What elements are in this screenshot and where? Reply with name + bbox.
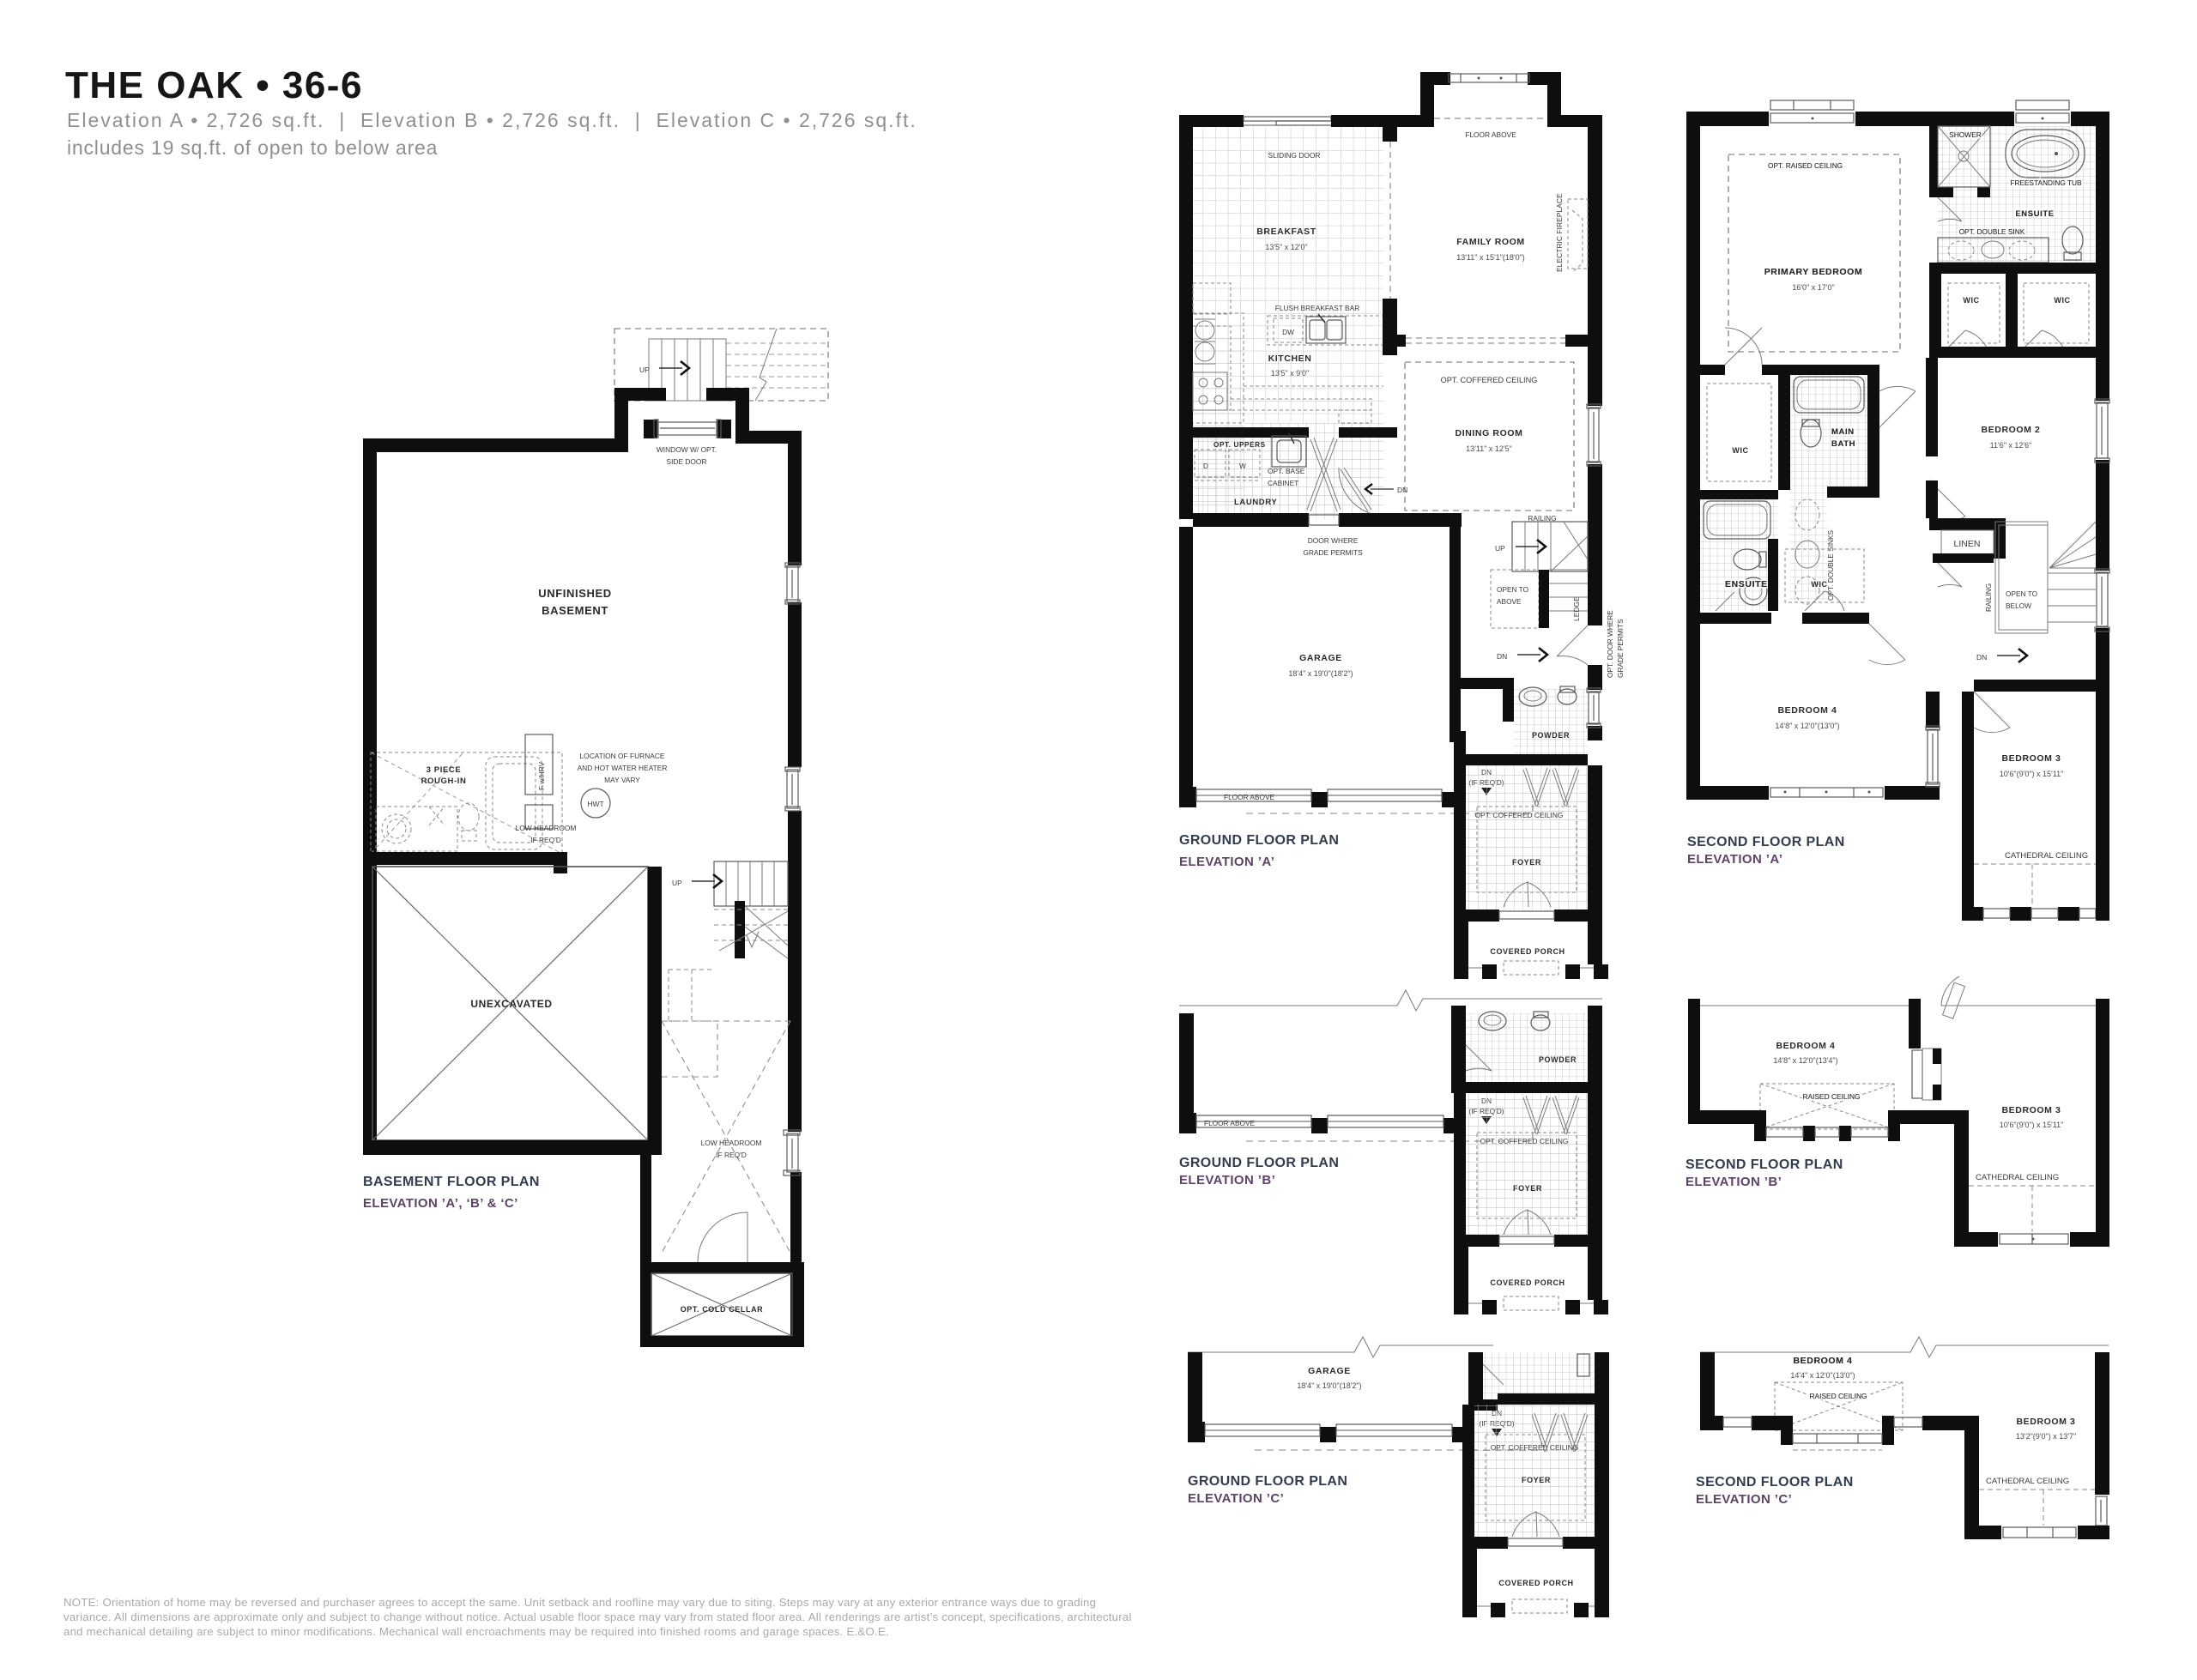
svg-text:OPEN TO: OPEN TO bbox=[2006, 589, 2038, 598]
svg-text:DINING ROOM: DINING ROOM bbox=[1456, 428, 1523, 438]
svg-text:FLUSH BREAKFAST BAR: FLUSH BREAKFAST BAR bbox=[1275, 304, 1360, 312]
svg-text:GROUND FLOOR PLAN: GROUND FLOOR PLAN bbox=[1179, 1156, 1339, 1170]
svg-text:MAY VARY: MAY VARY bbox=[604, 776, 640, 784]
svg-text:Elevation A • 2,726 sq.ft. |: Elevation A • 2,726 sq.ft. | Elevation B… bbox=[67, 109, 917, 131]
svg-text:POWDER: POWDER bbox=[1532, 731, 1570, 740]
svg-text:CATHEDRAL CEILING: CATHEDRAL CEILING bbox=[1986, 1477, 2069, 1486]
svg-text:WIC: WIC bbox=[1811, 580, 1827, 589]
svg-text:OPT. DOUBLE SINKS: OPT. DOUBLE SINKS bbox=[1826, 529, 1835, 601]
svg-text:OPT. COFFERED CEILING: OPT. COFFERED CEILING bbox=[1480, 1137, 1569, 1145]
svg-text:KITCHEN: KITCHEN bbox=[1268, 354, 1312, 364]
svg-text:GRADE PERMITS: GRADE PERMITS bbox=[1303, 548, 1363, 557]
svg-text:ENSUITE: ENSUITE bbox=[2015, 209, 2054, 219]
svg-text:ELECTRIC FIREPLACE: ELECTRIC FIREPLACE bbox=[1555, 193, 1564, 272]
svg-text:OPT. COFFERED CEILING: OPT. COFFERED CEILING bbox=[1475, 811, 1564, 819]
svg-text:CATHEDRAL CEILING: CATHEDRAL CEILING bbox=[1976, 1173, 2059, 1182]
svg-text:BELOW: BELOW bbox=[2006, 601, 2031, 610]
svg-text:D: D bbox=[1203, 462, 1208, 470]
svg-text:18'4" x 19'0"(18'2"): 18'4" x 19'0"(18'2") bbox=[1288, 669, 1353, 678]
svg-text:BREAKFAST: BREAKFAST bbox=[1256, 227, 1316, 237]
svg-text:AND HOT WATER HEATER: AND HOT WATER HEATER bbox=[578, 764, 668, 772]
svg-text:FLOOR ABOVE: FLOOR ABOVE bbox=[1465, 130, 1516, 139]
svg-text:10'6"(9'0") x 15'11": 10'6"(9'0") x 15'11" bbox=[2000, 1121, 2064, 1129]
svg-text:and mechanical detailing are s: and mechanical detailing are subject to … bbox=[64, 1625, 889, 1638]
svg-text:ELEVATION ’C’: ELEVATION ’C’ bbox=[1696, 1492, 1792, 1507]
svg-text:MAIN: MAIN bbox=[1831, 427, 1855, 437]
svg-text:SECOND FLOOR PLAN: SECOND FLOOR PLAN bbox=[1687, 835, 1845, 849]
svg-text:13'11" x 15'1"(18'0"): 13'11" x 15'1"(18'0") bbox=[1456, 253, 1525, 262]
svg-text:CABINET: CABINET bbox=[1268, 479, 1298, 487]
svg-text:includes 19 sq.ft. of open to: includes 19 sq.ft. of open to below area bbox=[67, 136, 438, 159]
svg-text:RAISED CEILING: RAISED CEILING bbox=[1802, 1092, 1860, 1101]
svg-text:W: W bbox=[1239, 462, 1246, 470]
svg-text:GARAGE: GARAGE bbox=[1308, 1366, 1351, 1376]
svg-text:ELEVATION ’A’: ELEVATION ’A’ bbox=[1179, 855, 1274, 869]
svg-text:GROUND FLOOR PLAN: GROUND FLOOR PLAN bbox=[1179, 833, 1339, 848]
svg-text:BEDROOM 2: BEDROOM 2 bbox=[1982, 425, 2041, 435]
svg-text:BEDROOM 4: BEDROOM 4 bbox=[1794, 1356, 1853, 1366]
svg-text:UNEXCAVATED: UNEXCAVATED bbox=[470, 998, 552, 1010]
svg-text:BEDROOM 3: BEDROOM 3 bbox=[2002, 1105, 2061, 1115]
svg-text:10'6"(9'0") x 15'11": 10'6"(9'0") x 15'11" bbox=[2000, 770, 2064, 778]
svg-text:ELEVATION ’A’, ‘B’ & ‘C’: ELEVATION ’A’, ‘B’ & ‘C’ bbox=[363, 1196, 518, 1211]
svg-text:14'8" x 12'0"(13'4"): 14'8" x 12'0"(13'4") bbox=[1773, 1056, 1837, 1065]
svg-text:UP: UP bbox=[672, 879, 682, 887]
svg-text:UP: UP bbox=[639, 366, 650, 374]
svg-text:RAILING: RAILING bbox=[1984, 583, 1993, 612]
svg-text:F w/HRV: F w/HRV bbox=[537, 761, 546, 790]
svg-text:GARAGE: GARAGE bbox=[1299, 653, 1342, 663]
svg-text:ELEVATION ’A’: ELEVATION ’A’ bbox=[1687, 852, 1782, 867]
svg-text:13'5" x 9'0": 13'5" x 9'0" bbox=[1271, 369, 1309, 378]
svg-text:IF REQ'D: IF REQ'D bbox=[716, 1151, 747, 1159]
svg-text:UNFINISHED: UNFINISHED bbox=[538, 587, 611, 600]
svg-text:11'6" x 12'6": 11'6" x 12'6" bbox=[1990, 441, 2032, 450]
svg-text:FOYER: FOYER bbox=[1522, 1476, 1551, 1484]
svg-text:FAMILY ROOM: FAMILY ROOM bbox=[1456, 237, 1525, 247]
svg-text:BATH: BATH bbox=[1831, 439, 1855, 449]
svg-text:DN: DN bbox=[1397, 486, 1407, 494]
svg-text:FOYER: FOYER bbox=[1512, 858, 1541, 867]
svg-text:OPT. RAISED CEILING: OPT. RAISED CEILING bbox=[1768, 161, 1843, 170]
svg-text:WIC: WIC bbox=[1963, 296, 1979, 305]
svg-text:BEDROOM 3: BEDROOM 3 bbox=[2002, 753, 2061, 764]
svg-text:OPT. DOUBLE SINK: OPT. DOUBLE SINK bbox=[1959, 227, 2025, 236]
svg-text:ROUGH-IN: ROUGH-IN bbox=[421, 777, 467, 786]
svg-text:IF REQ'D: IF REQ'D bbox=[530, 836, 561, 844]
svg-text:BEDROOM 4: BEDROOM 4 bbox=[1776, 1041, 1836, 1051]
svg-text:DOOR WHERE: DOOR WHERE bbox=[1308, 536, 1359, 545]
svg-text:WIC: WIC bbox=[2054, 296, 2070, 305]
svg-text:BASEMENT FLOOR PLAN: BASEMENT FLOOR PLAN bbox=[363, 1175, 540, 1189]
svg-text:OPT. COFFERED CEILING: OPT. COFFERED CEILING bbox=[1441, 376, 1538, 384]
svg-text:OPT. COFFERED CEILING: OPT. COFFERED CEILING bbox=[1491, 1443, 1579, 1452]
svg-text:NOTE: Orientation of home may: NOTE: Orientation of home may be reverse… bbox=[64, 1596, 1096, 1609]
svg-text:BEDROOM 3: BEDROOM 3 bbox=[2017, 1417, 2076, 1427]
svg-text:LAUNDRY: LAUNDRY bbox=[1234, 498, 1277, 507]
svg-text:ENSUITE: ENSUITE bbox=[1725, 579, 1768, 589]
svg-text:DN: DN bbox=[1497, 652, 1507, 661]
svg-text:13'5" x 12'0": 13'5" x 12'0" bbox=[1265, 243, 1307, 251]
svg-text:THE OAK • 36-6: THE OAK • 36-6 bbox=[65, 64, 363, 106]
svg-text:LOCATION OF FURNACE: LOCATION OF FURNACE bbox=[580, 752, 665, 760]
svg-text:14'4" x 12'0"(13'0"): 14'4" x 12'0"(13'0") bbox=[1790, 1371, 1855, 1380]
svg-text:ELEVATION ’B’: ELEVATION ’B’ bbox=[1686, 1175, 1782, 1189]
svg-text:PRIMARY BEDROOM: PRIMARY BEDROOM bbox=[1764, 267, 1863, 277]
svg-text:13'11" x 12'5": 13'11" x 12'5" bbox=[1466, 444, 1512, 453]
svg-text:DW: DW bbox=[1282, 328, 1294, 336]
svg-text:WIC: WIC bbox=[1732, 446, 1748, 455]
svg-text:CATHEDRAL CEILING: CATHEDRAL CEILING bbox=[2005, 851, 2088, 861]
svg-text:SLIDING DOOR: SLIDING DOOR bbox=[1268, 151, 1321, 160]
svg-text:SIDE DOOR: SIDE DOOR bbox=[667, 457, 707, 466]
svg-text:LINEN: LINEN bbox=[1954, 539, 1981, 549]
svg-text:DN: DN bbox=[1976, 653, 1987, 662]
svg-text:LOW HEADROOM: LOW HEADROOM bbox=[701, 1139, 762, 1147]
svg-text:SECOND FLOOR PLAN: SECOND FLOOR PLAN bbox=[1686, 1157, 1843, 1172]
svg-text:COVERED PORCH: COVERED PORCH bbox=[1498, 1579, 1573, 1587]
svg-text:BEDROOM 4: BEDROOM 4 bbox=[1778, 705, 1837, 716]
svg-text:WINDOW W/ OPT.: WINDOW W/ OPT. bbox=[657, 445, 717, 454]
svg-text:COVERED PORCH: COVERED PORCH bbox=[1490, 1278, 1565, 1287]
svg-text:ELEVATION ’B’: ELEVATION ’B’ bbox=[1179, 1173, 1275, 1187]
svg-text:BASEMENT: BASEMENT bbox=[542, 604, 608, 617]
svg-text:HWT: HWT bbox=[587, 800, 603, 808]
svg-text:ABOVE: ABOVE bbox=[1497, 597, 1522, 606]
svg-text:SHOWER: SHOWER bbox=[1949, 130, 1982, 139]
svg-text:RAILING: RAILING bbox=[1528, 514, 1556, 523]
svg-text:LEDGE: LEDGE bbox=[1572, 596, 1581, 621]
svg-text:18'4" x 19'0"(18'2"): 18'4" x 19'0"(18'2") bbox=[1297, 1381, 1361, 1390]
svg-text:COVERED PORCH: COVERED PORCH bbox=[1490, 947, 1565, 956]
svg-text:LOW HEADROOM: LOW HEADROOM bbox=[516, 824, 577, 832]
svg-text:OPT. COLD CELLAR: OPT. COLD CELLAR bbox=[681, 1305, 764, 1314]
svg-text:variance. All dimensions are a: variance. All dimensions are approximate… bbox=[64, 1611, 1132, 1623]
svg-text:3 PIECE: 3 PIECE bbox=[427, 765, 462, 775]
svg-text:FLOOR ABOVE: FLOOR ABOVE bbox=[1224, 793, 1274, 801]
svg-text:13'2"(9'0") x 13'7": 13'2"(9'0") x 13'7" bbox=[2016, 1432, 2076, 1441]
svg-text:RAISED CEILING: RAISED CEILING bbox=[1809, 1392, 1867, 1400]
svg-text:OPT. BASE: OPT. BASE bbox=[1268, 467, 1305, 475]
svg-text:FLOOR ABOVE: FLOOR ABOVE bbox=[1204, 1119, 1255, 1127]
svg-text:GROUND FLOOR PLAN: GROUND FLOOR PLAN bbox=[1188, 1474, 1347, 1489]
svg-text:GRADE PERMITS: GRADE PERMITS bbox=[1616, 619, 1625, 678]
svg-text:UP: UP bbox=[1495, 544, 1505, 553]
svg-text:FREESTANDING TUB: FREESTANDING TUB bbox=[2010, 178, 2082, 187]
svg-text:16'0" x 17'0": 16'0" x 17'0" bbox=[1792, 283, 1834, 292]
svg-text:ELEVATION ’C’: ELEVATION ’C’ bbox=[1188, 1491, 1284, 1506]
svg-text:OPT. DOOR WHERE: OPT. DOOR WHERE bbox=[1606, 610, 1614, 678]
svg-text:OPT. UPPERS: OPT. UPPERS bbox=[1213, 441, 1266, 449]
svg-text:OPEN TO: OPEN TO bbox=[1497, 585, 1529, 594]
svg-text:SECOND FLOOR PLAN: SECOND FLOOR PLAN bbox=[1696, 1475, 1854, 1490]
svg-text:14'8" x 12'0"(13'0"): 14'8" x 12'0"(13'0") bbox=[1775, 722, 1839, 730]
svg-text:FOYER: FOYER bbox=[1513, 1184, 1542, 1193]
svg-text:POWDER: POWDER bbox=[1539, 1055, 1577, 1064]
